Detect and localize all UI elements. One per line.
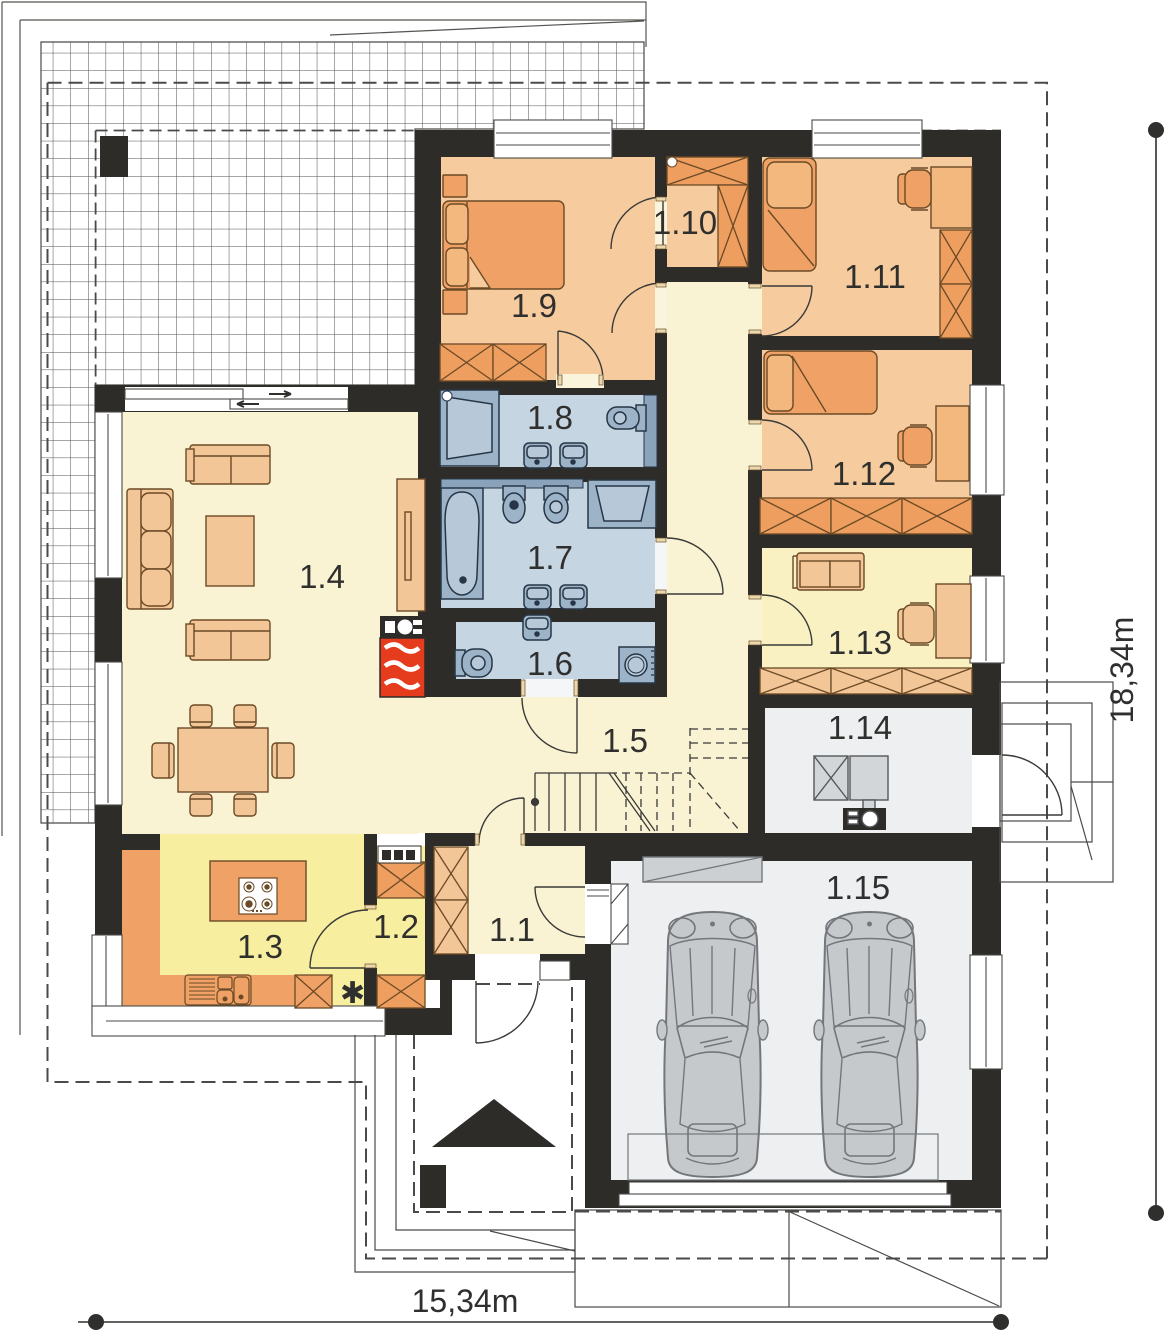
svg-text:1.4: 1.4 <box>299 558 345 595</box>
svg-text:1.11: 1.11 <box>844 258 906 295</box>
svg-text:1.5: 1.5 <box>602 722 648 759</box>
svg-text:1.7: 1.7 <box>527 539 573 576</box>
svg-text:1.1: 1.1 <box>489 911 535 948</box>
svg-text:1.14: 1.14 <box>828 709 892 746</box>
svg-text:1.9: 1.9 <box>511 287 557 324</box>
svg-text:1.6: 1.6 <box>527 645 573 682</box>
svg-text:1.12: 1.12 <box>832 455 896 492</box>
svg-text:18,34m: 18,34m <box>1104 617 1140 724</box>
svg-text:1.13: 1.13 <box>828 624 892 661</box>
svg-text:1.15: 1.15 <box>826 869 890 906</box>
svg-text:1.8: 1.8 <box>527 399 573 436</box>
svg-text:1.10: 1.10 <box>653 204 717 241</box>
svg-text:1.2: 1.2 <box>373 908 419 945</box>
svg-text:15,34m: 15,34m <box>412 1283 519 1319</box>
svg-text:✱: ✱ <box>340 977 365 1010</box>
svg-text:1.3: 1.3 <box>237 928 283 965</box>
